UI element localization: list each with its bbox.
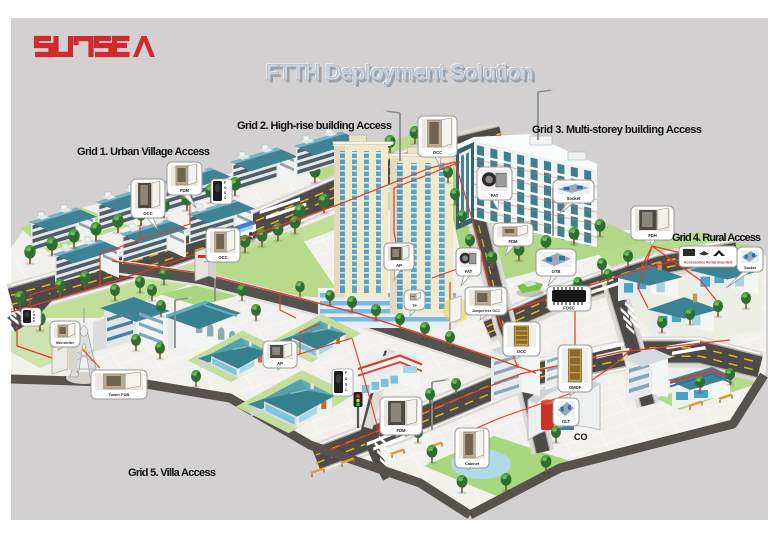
svg-text:Grid 1. Urban Village Access: Grid 1. Urban Village Access	[77, 146, 210, 158]
svg-text:TP: TP	[412, 304, 417, 308]
svg-text:FDM: FDM	[508, 239, 518, 244]
svg-text:OCC: OCC	[517, 349, 526, 354]
svg-text:Grid 4. Rural Access: Grid 4. Rural Access	[672, 232, 761, 244]
svg-text:FTTH Deployment Solution: FTTH Deployment Solution	[266, 60, 534, 85]
svg-text:OMDF: OMDF	[569, 385, 582, 390]
svg-text:Grid 5. Villa Access: Grid 5. Villa Access	[128, 467, 216, 479]
svg-text:Accessories Aerial mounted: Accessories Aerial mounted	[684, 261, 732, 265]
svg-text:Socket: Socket	[744, 266, 757, 270]
svg-text:Tower FDB: Tower FDB	[109, 392, 130, 397]
svg-text:FOSC: FOSC	[563, 306, 575, 311]
svg-text:Cabinet: Cabinet	[465, 462, 480, 466]
svg-text:C: C	[33, 319, 35, 323]
svg-text:Socket: Socket	[567, 196, 581, 201]
svg-text:AP: AP	[277, 361, 283, 366]
svg-text:OCC: OCC	[218, 255, 227, 260]
svg-text:FAT: FAT	[465, 269, 473, 274]
svg-text:OCC: OCC	[143, 211, 152, 216]
svg-text:AP: AP	[396, 263, 402, 268]
svg-text:Mini shelter: Mini shelter	[56, 341, 74, 345]
svg-text:CO: CO	[574, 432, 588, 442]
svg-text:OLT: OLT	[562, 419, 571, 424]
svg-text:Grid 3. Multi-storey building: Grid 3. Multi-storey building Access	[532, 124, 702, 136]
svg-text:Grid 2. High-rise building Acc: Grid 2. High-rise building Access	[237, 120, 392, 132]
svg-text:FDH: FDH	[648, 233, 657, 238]
svg-text:S: S	[224, 191, 226, 195]
svg-text:F: F	[345, 371, 347, 375]
svg-text:F: F	[224, 181, 226, 185]
svg-text:S: S	[345, 382, 347, 386]
svg-text:OCC: OCC	[433, 150, 442, 155]
svg-text:FAT: FAT	[491, 193, 499, 198]
svg-text:Jumper free OCC: Jumper free OCC	[472, 309, 500, 313]
svg-text:FDM: FDM	[180, 188, 190, 193]
svg-text:OTB: OTB	[552, 269, 561, 274]
svg-text:FDM: FDM	[396, 428, 406, 433]
